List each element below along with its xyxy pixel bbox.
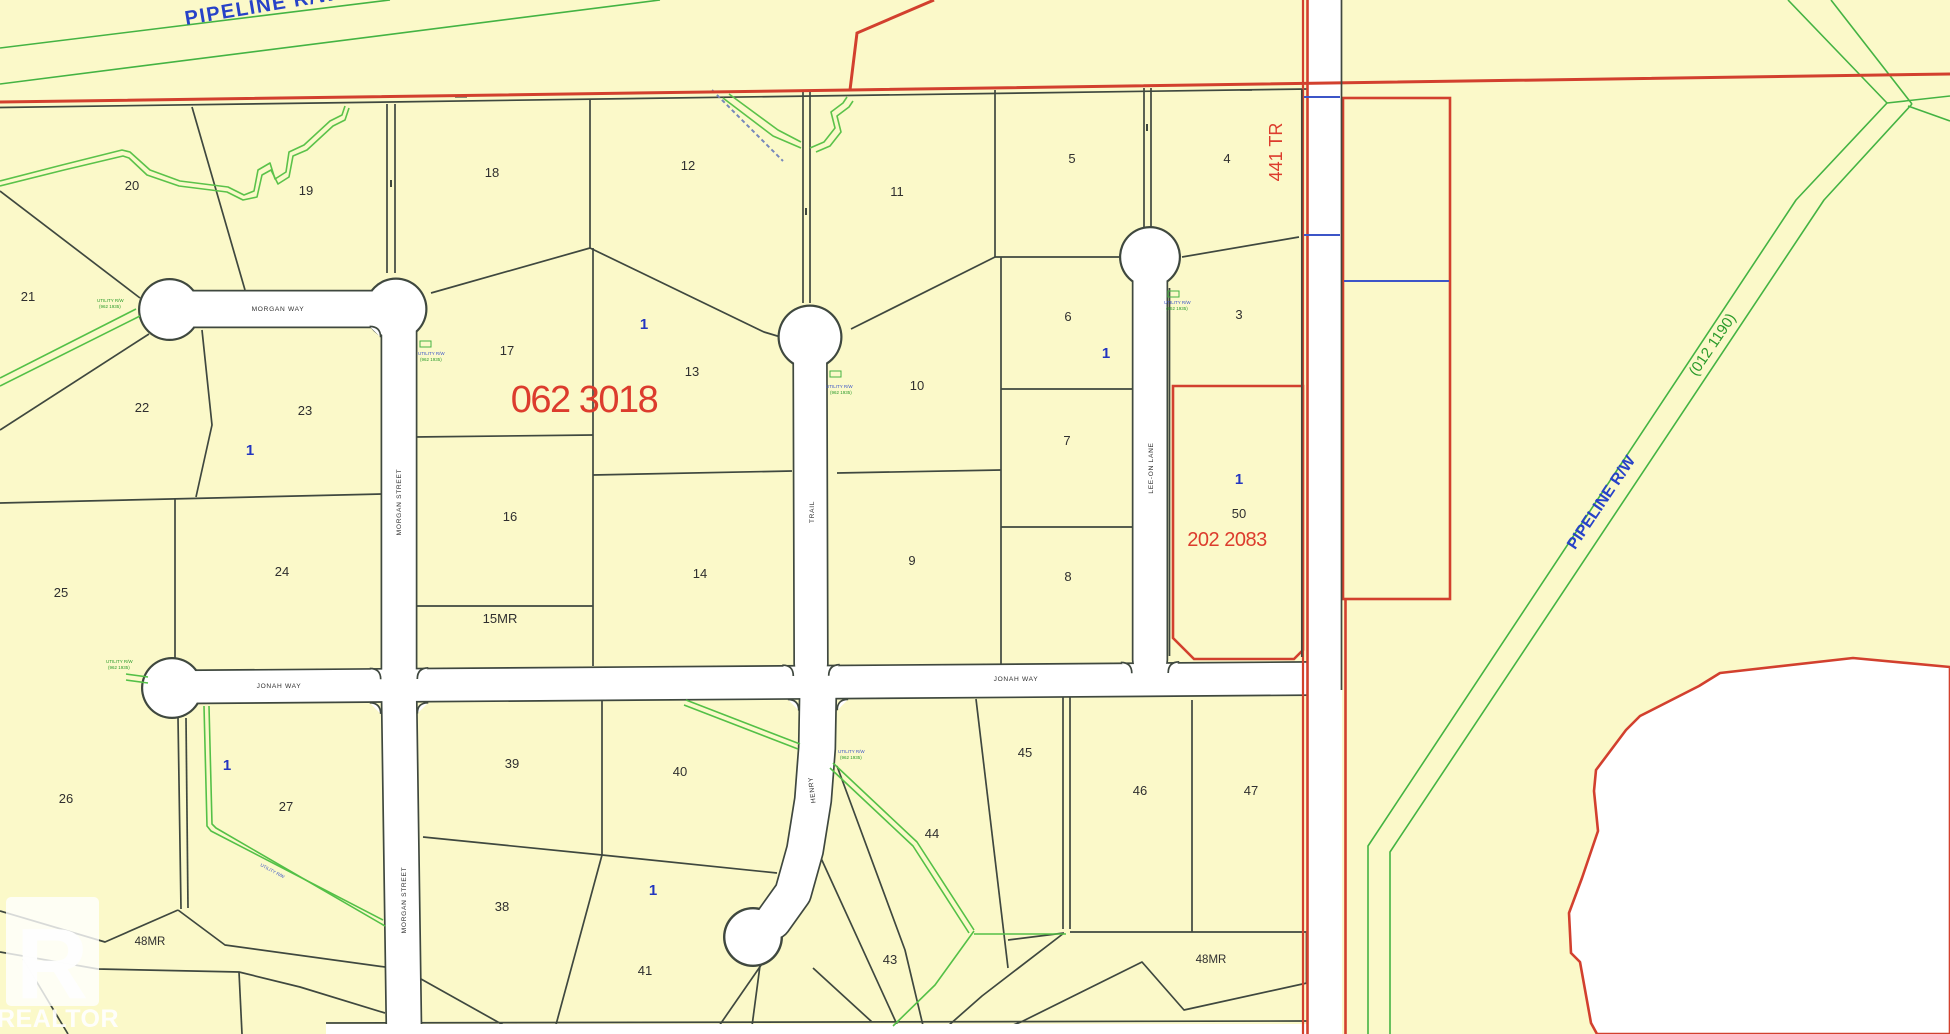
svg-text:22: 22 (135, 400, 149, 415)
svg-text:(962 1935): (962 1935) (99, 304, 121, 309)
svg-text:50: 50 (1232, 506, 1246, 521)
svg-text:40: 40 (673, 764, 687, 779)
svg-text:R: R (16, 908, 88, 1020)
svg-text:1: 1 (1102, 345, 1110, 362)
svg-text:UTILITY R/W: UTILITY R/W (838, 749, 865, 754)
svg-text:UTILITY R/W: UTILITY R/W (1164, 300, 1191, 305)
svg-text:17: 17 (500, 343, 514, 358)
svg-text:(962 1935): (962 1935) (420, 357, 442, 362)
svg-text:MORGAN STREET: MORGAN STREET (396, 469, 403, 536)
svg-text:UTILITY R/W: UTILITY R/W (106, 659, 133, 664)
svg-text:REALTOR: REALTOR (0, 1005, 119, 1033)
svg-text:UTILITY R/W: UTILITY R/W (418, 351, 445, 356)
svg-text:MORGAN WAY: MORGAN WAY (252, 306, 305, 313)
svg-text:25: 25 (54, 585, 68, 600)
svg-text:15MR: 15MR (483, 611, 518, 626)
svg-text:46: 46 (1133, 783, 1147, 798)
svg-text:1: 1 (640, 316, 648, 333)
svg-text:11: 11 (890, 184, 904, 199)
svg-text:TRAIL: TRAIL (809, 501, 816, 523)
svg-text:6: 6 (1064, 309, 1071, 324)
svg-text:UTILITY R/W: UTILITY R/W (826, 384, 853, 389)
svg-text:441 TR: 441 TR (1266, 123, 1286, 182)
svg-text:18: 18 (485, 165, 499, 180)
svg-text:24: 24 (275, 564, 289, 579)
svg-text:47: 47 (1244, 783, 1258, 798)
svg-text:3: 3 (1235, 307, 1242, 322)
svg-text:202 2083: 202 2083 (1187, 529, 1267, 551)
svg-text:23: 23 (298, 403, 312, 418)
svg-text:39: 39 (505, 756, 519, 771)
svg-text:26: 26 (59, 791, 73, 806)
svg-text:44: 44 (925, 826, 939, 841)
svg-text:9: 9 (908, 553, 915, 568)
svg-text:(962 1935): (962 1935) (830, 390, 852, 395)
svg-text:16: 16 (503, 509, 517, 524)
svg-text:19: 19 (299, 183, 313, 198)
svg-text:27: 27 (279, 799, 293, 814)
svg-text:(962 1935): (962 1935) (840, 755, 862, 760)
svg-text:UTILITY R/W: UTILITY R/W (97, 298, 124, 303)
svg-text:41: 41 (638, 963, 652, 978)
svg-text:4: 4 (1223, 151, 1230, 166)
svg-text:20: 20 (125, 178, 139, 193)
svg-text:14: 14 (693, 566, 707, 581)
svg-text:48MR: 48MR (135, 936, 166, 948)
svg-text:JONAH WAY: JONAH WAY (257, 683, 302, 690)
svg-text:MORGAN STREET: MORGAN STREET (401, 867, 408, 934)
svg-text:LEE-ON LANE: LEE-ON LANE (1148, 442, 1155, 493)
svg-text:7: 7 (1063, 433, 1070, 448)
svg-text:43: 43 (883, 952, 897, 967)
svg-text:062 3018: 062 3018 (511, 379, 658, 421)
svg-text:1: 1 (246, 442, 254, 459)
svg-text:10: 10 (910, 378, 924, 393)
svg-text:8: 8 (1064, 569, 1071, 584)
svg-text:JONAH WAY: JONAH WAY (994, 676, 1039, 683)
svg-text:5: 5 (1068, 151, 1075, 166)
svg-text:21: 21 (21, 289, 35, 304)
svg-text:12: 12 (681, 158, 695, 173)
svg-text:13: 13 (685, 364, 699, 379)
svg-text:1: 1 (649, 882, 657, 899)
svg-text:38: 38 (495, 899, 509, 914)
svg-text:(962 1935): (962 1935) (1166, 306, 1188, 311)
svg-text:1: 1 (1235, 471, 1243, 488)
svg-text:48MR: 48MR (1196, 954, 1227, 966)
svg-text:45: 45 (1018, 745, 1032, 760)
svg-text:(962 1935): (962 1935) (108, 665, 130, 670)
svg-text:1: 1 (223, 757, 231, 774)
